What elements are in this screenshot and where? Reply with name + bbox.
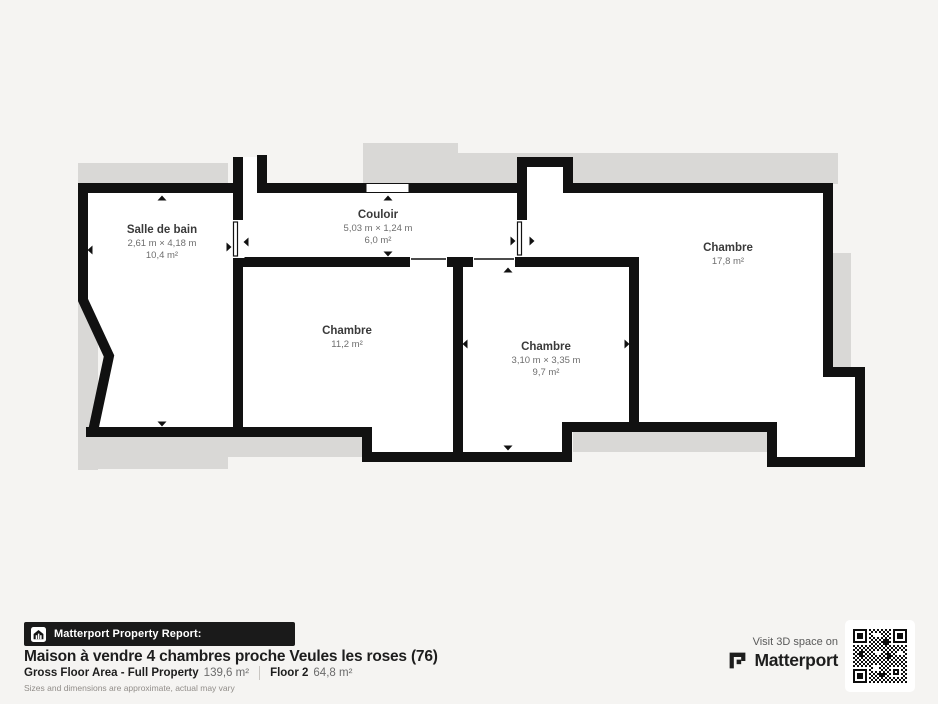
floor-area-stats: Gross Floor Area - Full Property 139,6 m…: [24, 666, 352, 680]
branding-block: Visit 3D space on Matterport: [727, 636, 838, 671]
property-report-icon: [31, 627, 46, 642]
door-gap-chambre1: [410, 256, 447, 268]
matterport-logo-text: Matterport: [754, 650, 838, 671]
room-name: Salle de bain: [127, 224, 197, 236]
floor-label: Floor 2: [270, 667, 308, 679]
room-area: 9,7 m²: [533, 367, 560, 378]
disclaimer-text: Sizes and dimensions are approximate, ac…: [24, 683, 235, 693]
floor-value: 64,8 m²: [313, 667, 352, 679]
visit-3d-text: Visit 3D space on: [727, 636, 838, 648]
matterport-logo-icon: [727, 650, 748, 671]
report-banner-label: Matterport Property Report:: [54, 628, 202, 640]
room-area: 17,8 m²: [712, 256, 744, 267]
room-name: Chambre: [703, 242, 753, 254]
room-name: Chambre: [521, 341, 571, 353]
floorplan-canvas: Salle de bain 2,61 m × 4,18 m 10,4 m² Co…: [0, 0, 938, 704]
report-banner: Matterport Property Report:: [24, 622, 295, 646]
room-dimensions: 2,61 m × 4,18 m: [128, 238, 197, 249]
gross-floor-area-value: 139,6 m²: [204, 667, 249, 679]
room-fills: [83, 157, 865, 462]
room-name: Chambre: [322, 325, 372, 337]
room-area: 11,2 m²: [331, 339, 363, 350]
floorplan-report-page: Salle de bain 2,61 m × 4,18 m 10,4 m² Co…: [0, 0, 938, 704]
stats-divider: [259, 666, 260, 680]
door-gap-chambre2: [473, 256, 515, 268]
room-dimensions: 5,03 m × 1,24 m: [344, 223, 413, 234]
window: [366, 184, 409, 193]
room-area: 10,4 m²: [146, 250, 178, 261]
door-leaf-chambre3: [518, 222, 522, 255]
room-dimensions: 3,10 m × 3,35 m: [512, 355, 581, 366]
property-title: Maison à vendre 4 chambres proche Veules…: [24, 648, 438, 666]
room-name: Couloir: [358, 209, 399, 221]
qr-code: [845, 620, 915, 692]
gross-floor-area-label: Gross Floor Area - Full Property: [24, 667, 199, 679]
matterport-logo: Matterport: [727, 650, 838, 671]
qr-code-image: [851, 627, 909, 685]
room-area: 6,0 m²: [365, 235, 392, 246]
door-leaf-bathroom: [234, 222, 238, 256]
